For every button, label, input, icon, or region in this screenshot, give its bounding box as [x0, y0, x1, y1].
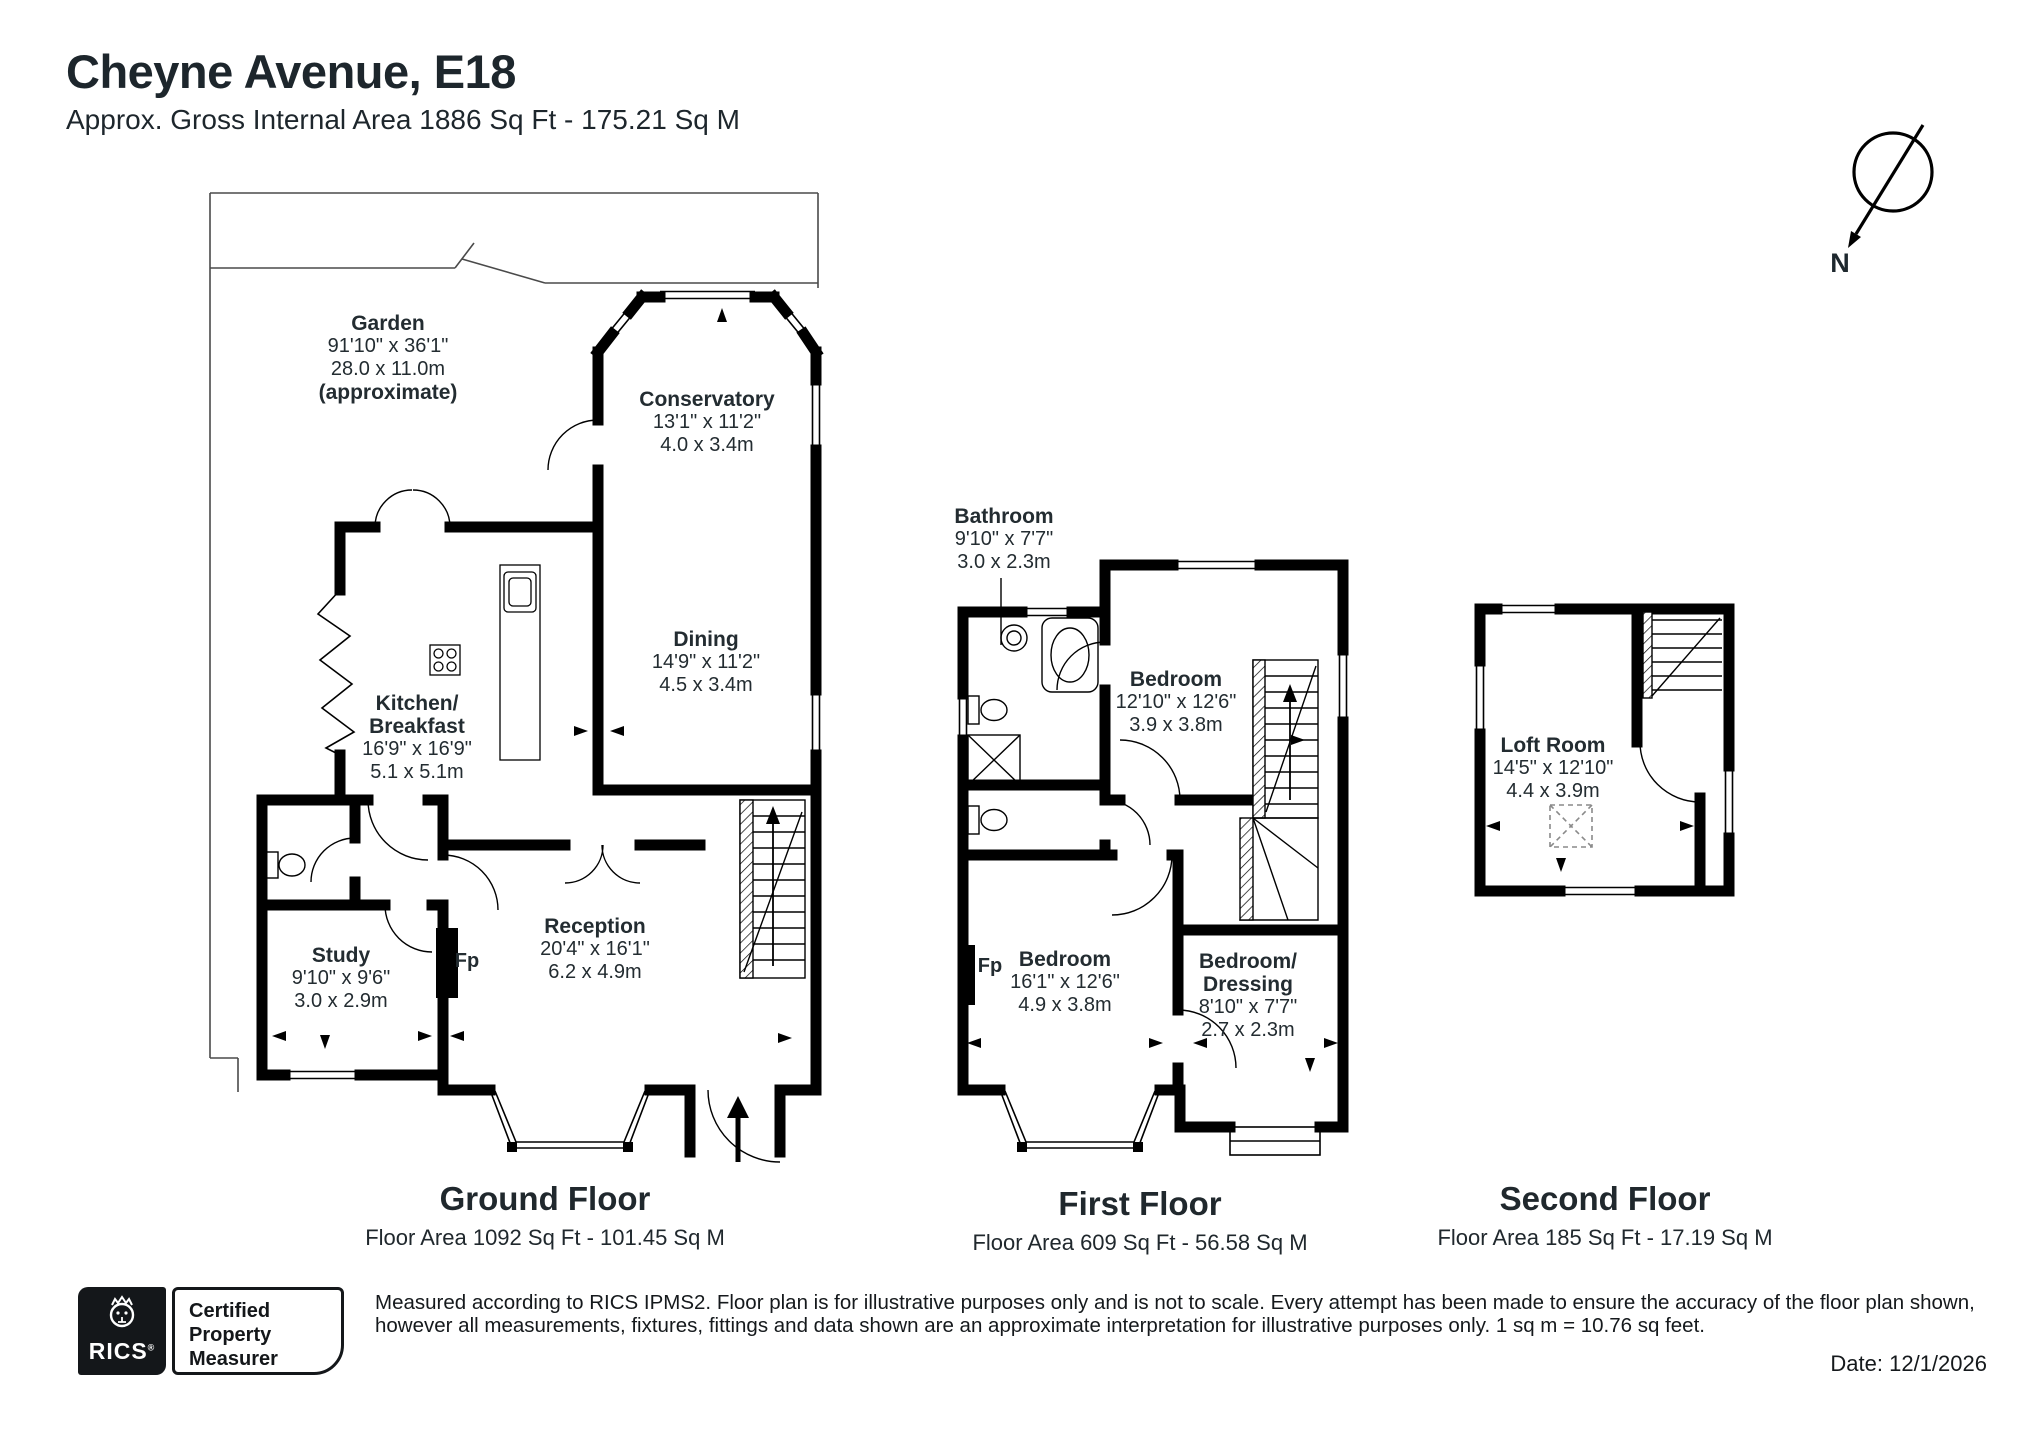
- page-title: Cheyne Avenue, E18: [66, 44, 740, 99]
- room-label-reception: Reception 20'4" x 16'1" 6.2 x 4.9m: [540, 915, 650, 984]
- second-door-arc: [1640, 742, 1700, 802]
- room-label-bedroom2: Bedroom 16'1" x 12'6" 4.9 x 3.8m: [1010, 948, 1120, 1017]
- ground-stairs-icon: [740, 800, 805, 978]
- loft-hatch-icon: [1550, 805, 1592, 847]
- caption-second-floor: Second Floor Floor Area 185 Sq Ft - 17.1…: [1437, 1180, 1772, 1251]
- rics-lion-icon: [102, 1295, 142, 1331]
- north-arrowhead: [1848, 231, 1861, 248]
- caption-ground-floor: Ground Floor Floor Area 1092 Sq Ft - 101…: [365, 1180, 725, 1251]
- second-stairs-icon: [1643, 612, 1722, 698]
- toilet-icon-wc: [968, 806, 979, 834]
- room-label-study: Study 9'10" x 9'6" 3.0 x 2.9m: [292, 944, 391, 1013]
- kitchen-bay-window-zigzag: [318, 590, 354, 755]
- room-label-kitchen: Kitchen/ Breakfast 16'9" x 16'9" 5.1 x 5…: [362, 692, 472, 784]
- compass-icon: N: [1830, 125, 1932, 278]
- room-label-garden: Garden 91'10" x 36'1" 28.0 x 11.0m (appr…: [319, 312, 458, 404]
- first-stairs-icon: [1240, 660, 1318, 920]
- room-label-bedroom-dressing: Bedroom/ Dressing 8'10" x 7'7" 2.7 x 2.3…: [1199, 950, 1298, 1042]
- date-label: Date: 12/1/2026: [1830, 1351, 1987, 1377]
- fireplace-label-first: Fp: [978, 955, 1002, 978]
- disclaimer-text: Measured according to RICS IPMS2. Floor …: [375, 1291, 1993, 1337]
- page-subtitle: Approx. Gross Internal Area 1886 Sq Ft -…: [66, 104, 740, 136]
- hob-icon: [430, 645, 460, 675]
- caption-first-floor: First Floor Floor Area 609 Sq Ft - 56.58…: [972, 1185, 1307, 1256]
- rics-brand-text: RICS®: [78, 1338, 166, 1365]
- header: Cheyne Avenue, E18 Approx. Gross Interna…: [66, 44, 740, 136]
- room-label-loft: Loft Room 14'5" x 12'10" 4.4 x 3.9m: [1493, 734, 1614, 803]
- fireplace-label-ground: Fp: [455, 950, 479, 973]
- reception-bay-window: [490, 1090, 650, 1148]
- room-label-bedroom1: Bedroom 12'10" x 12'6" 3.9 x 3.8m: [1116, 668, 1237, 737]
- room-label-bathroom: Bathroom 9'10" x 7'7" 3.0 x 2.3m: [954, 505, 1053, 574]
- floorplan-page: N Cheyne Avenue, E18 Approx. Gross Inter…: [0, 0, 2025, 1432]
- certified-property-measurer-badge: Certified Property Measurer: [172, 1287, 344, 1375]
- chimney-breast-first: [963, 945, 975, 1005]
- entrance-arrow-icon: [727, 1096, 749, 1162]
- toilet-icon-ground: [266, 852, 305, 878]
- room-label-dining: Dining 14'9" x 11'2" 4.5 x 3.4m: [652, 628, 760, 697]
- compass-north-label: N: [1830, 248, 1850, 278]
- basin-icon: [1001, 625, 1027, 651]
- room-label-conservatory: Conservatory 13'1" x 11'2" 4.0 x 3.4m: [639, 388, 774, 457]
- rics-logo: RICS®: [78, 1287, 166, 1375]
- first-bay-window: [1000, 1090, 1160, 1148]
- toilet-icon-bathroom: [968, 696, 979, 724]
